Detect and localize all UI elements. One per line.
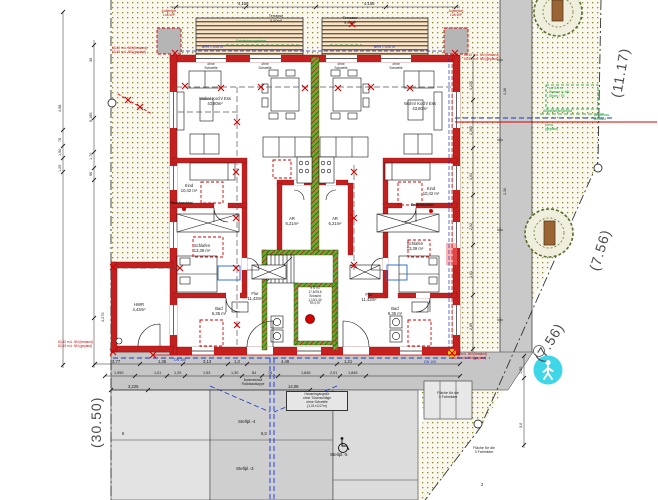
room-label-schlafen-left: Schlafen 13,39 m² <box>188 243 216 253</box>
level-note-bottom-right: 63,50 m ü. NN (bestand) 63,45 m ü. NN (g… <box>452 353 487 361</box>
boundary-dim-left: (30.50) <box>88 397 105 448</box>
parking-space-4: Stellpl.-4 <box>238 419 256 424</box>
parking-space-5: Stellpl.-5 <box>330 452 348 457</box>
utility-note: Abwasseranschluss <box>543 110 572 114</box>
road-strip <box>497 0 532 352</box>
smoke-detector-label: Rauchmelder <box>411 203 434 207</box>
room-label-flur-right: Flur 11,43m² <box>357 292 381 302</box>
dim-row2: 1,955 <box>114 371 124 376</box>
level-note-bottom-left: 63,40 m ü. NN (bestand) 63,45 m ü. NN (g… <box>58 341 93 349</box>
dim-row1: 4,48 <box>281 359 289 364</box>
drainage-channel-note: Entwässerungsrinne <box>236 40 266 44</box>
dim-park: 2 <box>481 482 483 487</box>
dim-top: 4,155 <box>364 1 374 6</box>
wall-highlight <box>446 243 457 265</box>
room-label-ar-left: AR 6,21m² <box>277 216 307 226</box>
parking-space-3: Stellpl.-3 <box>236 466 254 471</box>
dim-top: 4,155 <box>238 1 248 6</box>
level-note-top-right: 63,40 m ü. NN (bestand) 63,45 m ü. NN (g… <box>464 54 499 62</box>
dim-row2: 76 <box>268 371 272 376</box>
dim-row1: 3,13 <box>203 359 211 364</box>
dim-row2: 1,30 <box>231 371 238 376</box>
dim-left: 4,275 <box>101 312 106 322</box>
threshold-note: ohne Schwelle <box>381 63 411 71</box>
dim-right: 1,01 <box>469 173 473 180</box>
dim-row2: 1,25 <box>174 371 181 376</box>
connection-note: Anschluss Bestand <box>594 114 609 122</box>
tree-icon <box>525 209 573 257</box>
dim-right: 1,235 <box>469 81 473 90</box>
entrance-door-note: Hauseingangstür ohne Türanschläge ohne S… <box>286 391 348 411</box>
dim-left: 4,98 <box>58 105 63 112</box>
dim-left: 1,25 <box>58 165 63 172</box>
room-label-schlafen-right: Schlafen 13,39 m² <box>401 241 429 251</box>
dim-road: 1,30 <box>503 188 507 195</box>
dim-row3: 3,225 <box>128 384 138 389</box>
floor-plan: (30.50) (11.17) (7.56) (7.56) Terrasse 9… <box>0 0 658 500</box>
dim-row2: 2,01 <box>330 371 337 376</box>
dim-row3: 14,08 <box>288 384 298 389</box>
utility-box-note: ca. 5,0 m Wasser ü. NN Strom / TK <box>549 87 569 99</box>
dn100-note: DN 100 <box>174 358 186 362</box>
keva-note: KeVa (geplant) <box>545 124 558 132</box>
threshold-note: ohne Schwelle <box>326 63 356 71</box>
bike-area-label: Fläche für die 3 Fahrräder <box>462 446 506 455</box>
terrace-label: Terrasse 9,90m² <box>256 14 296 23</box>
dim-right-low: 3,0 <box>519 423 524 428</box>
brh-note: BRH = 0,00 m <box>374 46 395 50</box>
smoke-detector-dot-icon <box>182 207 186 211</box>
threshold-note: ohne Schwelle <box>250 63 280 71</box>
dim-row1: 1,36 <box>158 359 166 364</box>
room-label-bad-left: Bad 6,35 m² <box>208 306 230 316</box>
room-label-flur-left: Flur 11,43m² <box>243 291 267 301</box>
heat-pump-note: Aufstellort Luft-WP <box>436 10 476 18</box>
dim-row1: 1,3 <box>234 359 240 364</box>
brh-note: BRH = 0,00 m <box>202 46 223 50</box>
dim-row1: 3,77 <box>112 359 120 364</box>
threshold-note: ohne Schwelle <box>196 63 226 71</box>
dim-row2: 1,01 <box>154 371 161 376</box>
smoke-detector-dot-icon <box>306 315 315 324</box>
dim-left: 1,70 <box>89 153 94 160</box>
room-label-wohn-right: Wohn/ Koch/ Ess 43,80m² <box>398 101 442 111</box>
room-label-hwr: HWR 4,43m² <box>126 302 152 312</box>
dn100-note: DN 100 <box>424 360 436 364</box>
dim-right: 2,385 <box>469 126 473 135</box>
bike-stalls <box>424 381 472 419</box>
heat-pump-note: Aufstellort Luft-WP <box>149 10 189 18</box>
dim-right-low: 1,50 <box>519 367 524 374</box>
dim-row2: 84 <box>252 371 256 376</box>
dim-row2: 1,845 <box>348 371 358 376</box>
dim-right: 1,01 <box>469 271 473 278</box>
smoke-detector-dot-icon <box>429 209 433 213</box>
dim-row1: 1,21 <box>344 359 352 364</box>
dim-road: 1,36 <box>503 88 507 95</box>
dim-park: 6 <box>122 431 124 436</box>
dim-left: 35 <box>89 58 94 62</box>
room-label-kind-right: Kind 10,42 m² <box>418 186 444 196</box>
floor-drain-note: Bodeneinlauf Rückstauklappe <box>236 379 270 387</box>
party-wall <box>311 57 319 250</box>
bike-area-label: Fläche für die 3 Fahrräder <box>426 391 470 400</box>
room-label-kind-left: Kind 10,42 m² <box>176 183 202 193</box>
dim-left: 76 <box>58 138 63 142</box>
smoke-detector-label: Rauchmelder <box>170 201 193 205</box>
stair-spec: 9 STG 17,6/28,6 Schacht 1,10/1,40 TB 0,9… <box>297 287 333 306</box>
dim-row2: 1,53 <box>203 371 210 376</box>
room-label-ar-right: AR 6,21m² <box>320 216 350 226</box>
terrace-label: Terrasse 9,90m² <box>330 16 370 25</box>
dim-row2: 1,845 <box>301 371 311 376</box>
room-label-bad-right: Bad 6,35 m² <box>384 306 406 316</box>
dim-left: 96 <box>89 172 94 176</box>
dim-park: 6,0 <box>261 431 267 436</box>
dim-right: 2,89 <box>469 323 473 330</box>
dim-right: 2,52 <box>469 223 473 230</box>
level-note-top-left: 63,40 m ü. NN (bestand) 63,45 m ü. NN (g… <box>112 47 147 55</box>
dim-left: 1,50 <box>58 149 63 156</box>
room-label-wohn-left: Wohn/ Koch/ Ess 43,80m² <box>193 96 237 106</box>
dim-left: 5,185 <box>89 112 94 122</box>
